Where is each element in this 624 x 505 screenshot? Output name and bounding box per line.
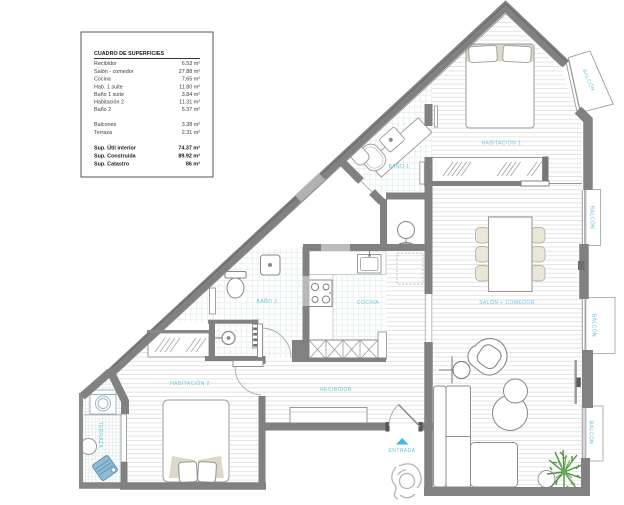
svg-text:Habitación 2: Habitación 2 (94, 100, 124, 106)
svg-text:RECIBIDOR: RECIBIDOR (320, 387, 352, 393)
svg-text:BALCÓN: BALCÓN (591, 314, 598, 337)
svg-text:Terraza: Terraza (94, 130, 112, 136)
svg-text:27.88 m²: 27.88 m² (179, 69, 200, 75)
svg-text:HABITACIÓN 1: HABITACIÓN 1 (482, 140, 522, 147)
svg-text:Sup. Construida: Sup. Construida (94, 154, 137, 160)
svg-text:3.38 m²: 3.38 m² (182, 122, 200, 128)
svg-text:SALÓN + COMEDOR: SALÓN + COMEDOR (479, 299, 535, 306)
svg-text:11.80 m²: 11.80 m² (179, 85, 200, 91)
svg-text:Sup. Útil interior: Sup. Útil interior (94, 145, 137, 152)
svg-text:3.84 m²: 3.84 m² (182, 92, 200, 98)
svg-text:11.31 m²: 11.31 m² (179, 100, 200, 106)
svg-text:86 m²: 86 m² (186, 162, 200, 168)
svg-text:Baño 2: Baño 2 (94, 107, 111, 113)
svg-text:BAÑO 1: BAÑO 1 (388, 163, 409, 170)
svg-text:TERRAZA: TERRAZA (97, 422, 103, 449)
svg-text:COCINA: COCINA (357, 300, 379, 306)
svg-text:BALCÓN: BALCÓN (588, 421, 595, 444)
svg-text:CUADRO DE SUPERFICIES: CUADRO DE SUPERFICIES (94, 51, 164, 57)
svg-text:BAÑO 2: BAÑO 2 (256, 298, 277, 305)
svg-text:BALCÓN: BALCÓN (589, 206, 596, 229)
svg-text:6.53 m²: 6.53 m² (182, 61, 200, 67)
svg-text:89.92 m²: 89.92 m² (178, 154, 200, 160)
svg-text:7.65 m²: 7.65 m² (182, 77, 200, 83)
svg-text:Hab. 1 suite: Hab. 1 suite (94, 85, 123, 91)
svg-text:Sup. Catastro: Sup. Catastro (94, 162, 130, 168)
svg-text:Baño 1 suite: Baño 1 suite (94, 92, 124, 98)
svg-text:5.37 m²: 5.37 m² (182, 107, 200, 113)
svg-text:Balcones: Balcones (94, 122, 116, 128)
svg-text:74.37 m²: 74.37 m² (178, 146, 200, 152)
svg-text:Recibidor: Recibidor (94, 61, 117, 67)
svg-text:HABITACIÓN 2: HABITACIÓN 2 (170, 380, 210, 387)
svg-text:Salón - comedor: Salón - comedor (94, 69, 134, 75)
svg-text:2.31 m²: 2.31 m² (182, 130, 200, 136)
svg-text:Cocina: Cocina (94, 77, 111, 83)
svg-text:ENTRADA: ENTRADA (388, 448, 415, 454)
